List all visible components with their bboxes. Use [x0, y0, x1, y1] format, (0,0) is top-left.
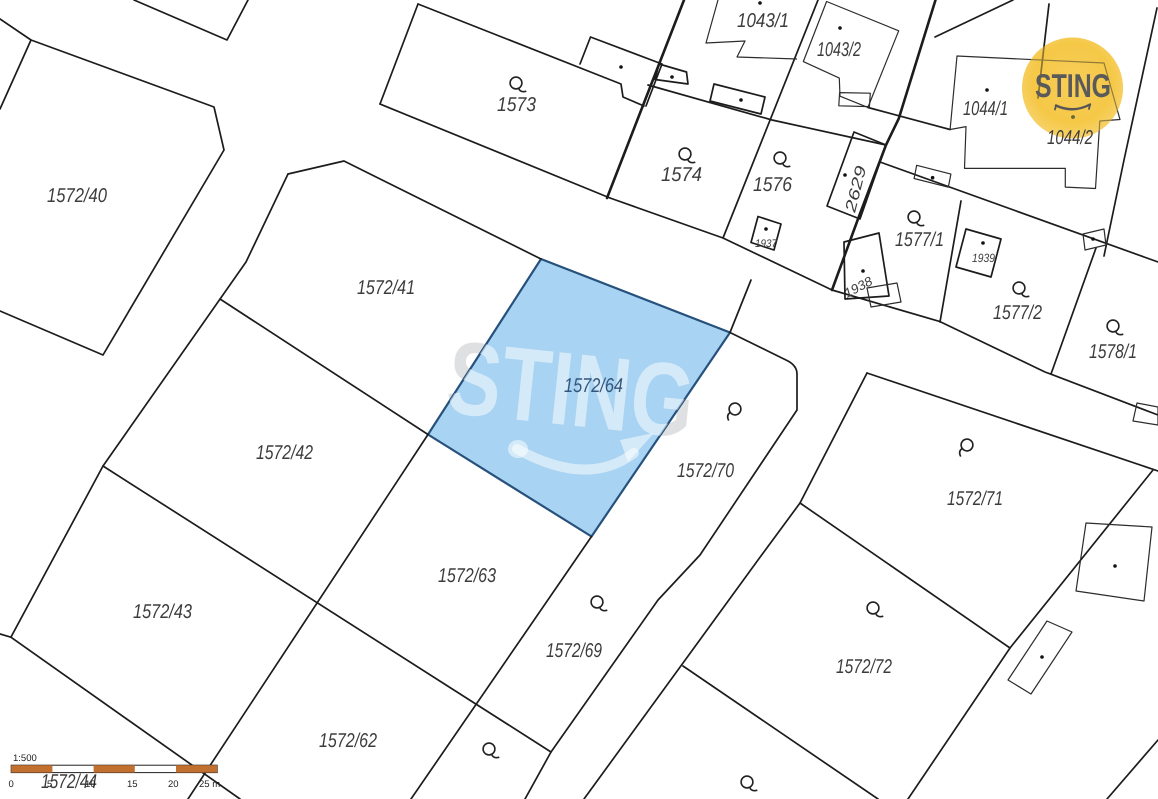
svg-text:1577/2: 1577/2 [993, 302, 1042, 324]
svg-text:1572/72: 1572/72 [836, 656, 892, 678]
svg-text:1572/70: 1572/70 [677, 460, 734, 482]
svg-text:25 m: 25 m [199, 779, 220, 790]
svg-text:10: 10 [85, 779, 96, 790]
svg-text:1574: 1574 [661, 164, 702, 186]
svg-text:1043/1: 1043/1 [737, 10, 789, 32]
svg-text:1:500: 1:500 [13, 753, 37, 764]
svg-text:1939: 1939 [972, 251, 995, 265]
svg-text:1578/1: 1578/1 [1089, 341, 1137, 363]
svg-text:1572/62: 1572/62 [319, 730, 377, 752]
svg-text:1572/40: 1572/40 [47, 185, 107, 207]
svg-text:1044/1: 1044/1 [963, 98, 1008, 120]
svg-text:1572/42: 1572/42 [256, 442, 313, 464]
svg-text:1572/43: 1572/43 [133, 601, 192, 623]
svg-text:15: 15 [127, 779, 138, 790]
svg-text:1572/71: 1572/71 [947, 488, 1003, 510]
svg-text:1572/63: 1572/63 [438, 565, 496, 587]
svg-text:1572/64: 1572/64 [564, 375, 623, 397]
svg-text:1573: 1573 [497, 94, 536, 116]
svg-text:1043/2: 1043/2 [817, 39, 861, 61]
svg-text:0: 0 [9, 779, 14, 790]
svg-text:1572/69: 1572/69 [546, 640, 602, 662]
svg-text:1576: 1576 [753, 174, 793, 196]
svg-text:1937: 1937 [755, 238, 778, 250]
svg-text:1572/41: 1572/41 [357, 277, 415, 299]
svg-text:1044/2: 1044/2 [1047, 127, 1093, 149]
svg-text:20: 20 [168, 779, 179, 790]
svg-text:STING: STING [1035, 67, 1111, 104]
svg-text:5: 5 [47, 779, 52, 790]
svg-text:1577/1: 1577/1 [895, 229, 944, 251]
